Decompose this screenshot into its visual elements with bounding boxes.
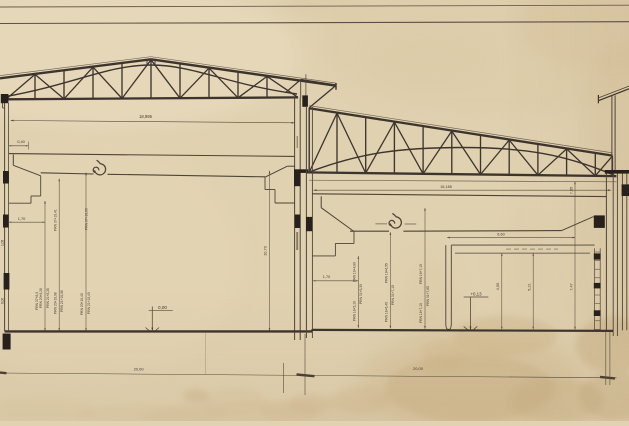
svg-text:0,00: 0,00 [158, 305, 167, 310]
svg-text:15,185: 15,185 [440, 185, 452, 189]
svg-text:PRN 18+5,10: PRN 18+5,10 [353, 301, 357, 321]
svg-text:6,60: 6,60 [497, 232, 504, 236]
svg-text:PRN 20+10,08: PRN 20+10,08 [53, 292, 57, 314]
svg-text:1,08: 1,08 [0, 240, 4, 246]
svg-text:+0,13: +0,13 [470, 292, 482, 297]
svg-text:PRN 19+4,80: PRN 19+4,80 [353, 262, 357, 282]
svg-text:PRN 37+8,9: PRN 37+8,9 [35, 292, 39, 310]
svg-text:7,55: 7,55 [569, 187, 573, 194]
svg-text:PRN 18+7,10: PRN 18+7,10 [419, 303, 423, 323]
svg-text:20,00: 20,00 [413, 366, 424, 371]
svg-text:PRN 37+10,00: PRN 37+10,00 [85, 208, 89, 230]
svg-text:7,47: 7,47 [569, 283, 573, 290]
svg-text:PRN 31+7,65: PRN 31+7,65 [426, 286, 430, 306]
svg-text:PRN 31+7,10: PRN 31+7,10 [391, 285, 395, 305]
svg-text:0,40: 0,40 [17, 139, 25, 144]
svg-text:5,21: 5,21 [528, 283, 532, 290]
svg-text:10,70: 10,70 [263, 245, 268, 256]
svg-text:PRN 37+10,41: PRN 37+10,41 [53, 209, 57, 231]
svg-text:PRN 21+8,28: PRN 21+8,28 [46, 288, 50, 308]
svg-text:PRN 31+5,30: PRN 31+5,30 [359, 284, 363, 304]
svg-text:PRN 20+8,28: PRN 20+8,28 [39, 288, 43, 308]
svg-text:PRN 20+10,40: PRN 20+10,40 [80, 293, 84, 315]
svg-text:PRN 19+7,10: PRN 19+7,10 [419, 264, 423, 284]
svg-text:18,995: 18,995 [139, 114, 152, 119]
svg-text:PRN 19+6,55: PRN 19+6,55 [385, 263, 389, 283]
svg-text:PRN 18+6,40: PRN 18+6,40 [385, 302, 389, 322]
svg-text:4,00: 4,00 [496, 283, 500, 290]
svg-text:PRN 21+10,08: PRN 21+10,08 [60, 290, 64, 312]
svg-text:1,70: 1,70 [323, 275, 330, 279]
svg-text:20,00: 20,00 [134, 367, 145, 372]
svg-text:PRN 21+10,40: PRN 21+10,40 [87, 292, 91, 314]
svg-text:8,00: 8,00 [0, 298, 4, 304]
svg-text:1,70: 1,70 [18, 216, 26, 221]
